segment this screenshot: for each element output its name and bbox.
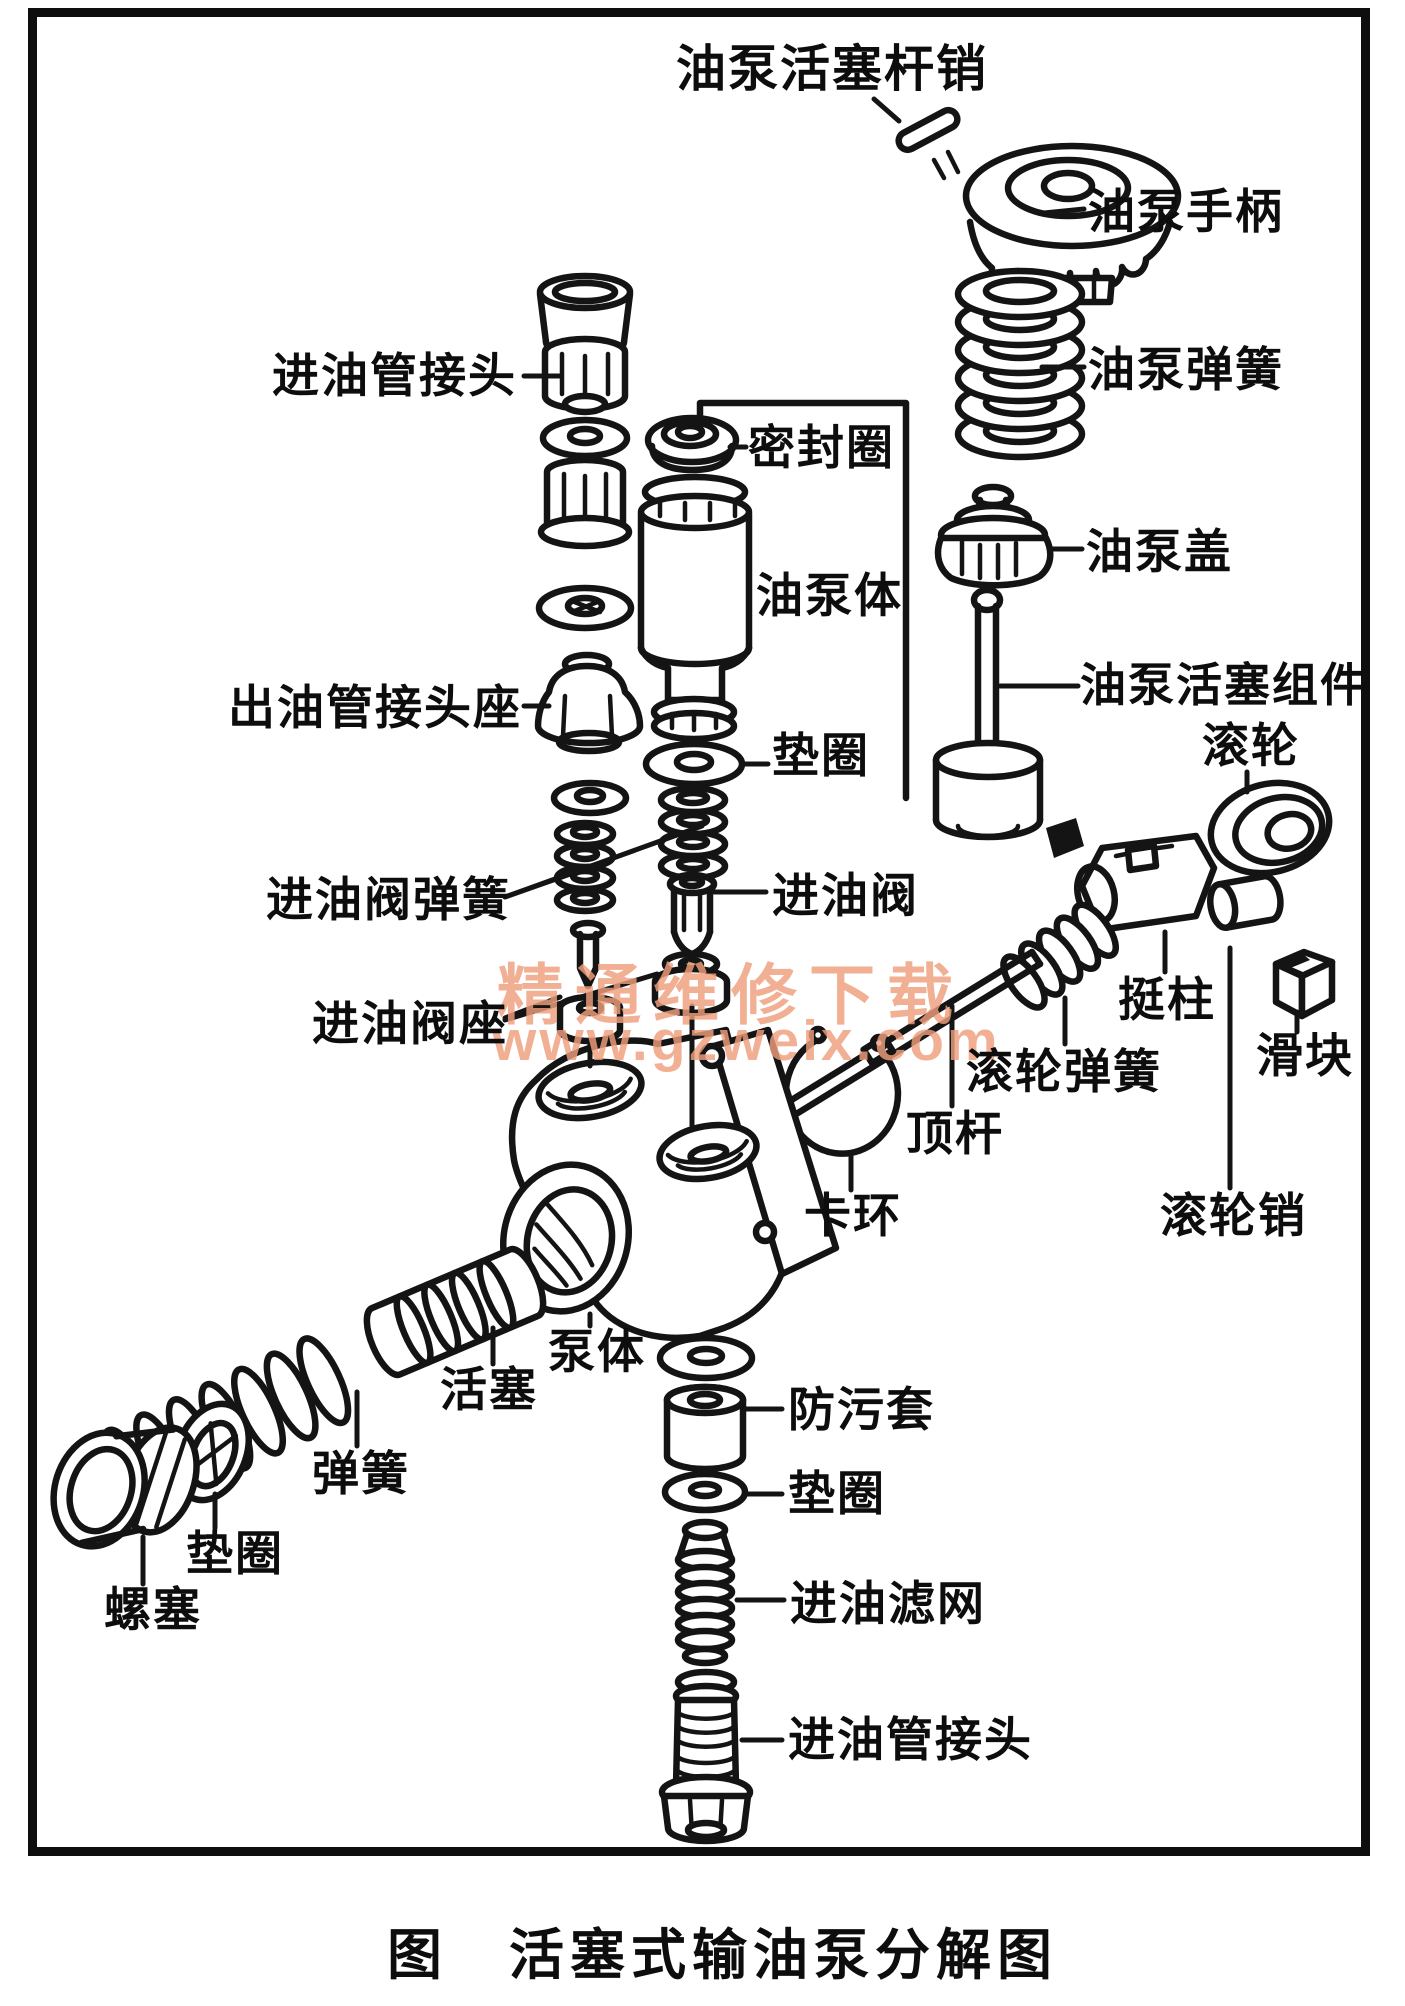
scanned-diagram-page: 精通维修下载 www.gzweix.com 油泵活塞杆销 油泵手柄 油泵弹簧 进… [0,0,1405,2006]
watermark-url: www.gzweix.com [492,1008,1001,1074]
label-oil-pump-cover: 油泵盖 [1086,528,1233,575]
label-washer-left: 垫圈 [186,1530,284,1577]
label-dust-cover: 防污套 [788,1386,935,1433]
inlet-fitting-bottom-drawing [662,1672,750,1841]
label-seal-ring: 密封圈 [748,424,895,471]
label-inlet-valve-seat: 进油阀座 [312,1000,508,1047]
label-tappet: 挺柱 [1118,976,1216,1023]
figure-caption: 图 活塞式输油泵分解图 [0,1910,1405,1990]
label-washer-bottom: 垫圈 [788,1470,886,1517]
label-inlet-valve-spring: 进油阀弹簧 [266,876,511,923]
label-snap-ring: 卡环 [804,1192,902,1239]
label-oil-pump-spring: 油泵弹簧 [1088,346,1284,393]
outlet-fitting-column-drawing [538,276,640,1041]
label-spring: 弹簧 [312,1450,410,1497]
roller-spring-drawing [996,898,1123,1014]
label-inlet-pipe-fitting-top: 进油管接头 [272,352,517,399]
label-roller-pin: 滚轮销 [1160,1192,1307,1239]
oil-pump-cover-drawing [938,487,1050,585]
label-inlet-pipe-fitting-bottom: 进油管接头 [788,1716,1033,1763]
label-oil-pump-piston-rod-pin: 油泵活塞杆销 [676,44,988,94]
label-oil-pump-handle: 油泵手柄 [1088,188,1284,235]
label-washer-mid: 垫圈 [772,732,870,779]
label-oil-pump-piston-assembly: 油泵活塞组件 [1080,662,1368,708]
label-inlet-filter: 进油滤网 [790,1580,986,1627]
label-screw-plug: 螺塞 [104,1586,202,1633]
label-push-rod: 顶杆 [906,1110,1004,1157]
label-pump-body: 泵体 [548,1328,646,1375]
label-piston: 活塞 [440,1366,538,1413]
label-roller: 滚轮 [1202,722,1300,769]
label-roller-spring: 滚轮弹簧 [966,1048,1162,1095]
slider-drawing [1276,952,1332,1016]
label-oil-pump-barrel: 油泵体 [756,572,903,619]
inlet-filter-drawing [678,1522,732,1663]
piston-assembly-drawing [936,590,1040,837]
pump-barrel-column-drawing [641,418,749,1013]
inlet-valve-spring-right-drawing [661,788,725,878]
label-inlet-valve: 进油阀 [772,872,919,919]
inlet-column-drawing [660,1338,752,1841]
label-outlet-pipe-fitting-seat: 出油管接头座 [228,684,522,731]
label-slider: 滑块 [1256,1032,1354,1079]
oil-pump-spring-drawing [958,271,1082,457]
